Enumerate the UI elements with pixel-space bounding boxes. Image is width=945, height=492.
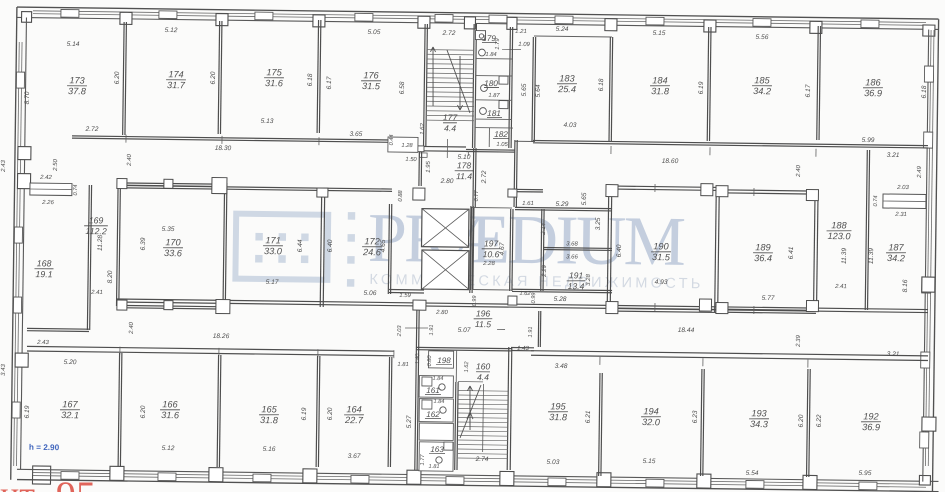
svg-text:2.43: 2.43 [36,340,49,346]
svg-text:174: 174 [168,69,183,79]
svg-text:2.40: 2.40 [796,164,802,177]
svg-text:31.6: 31.6 [161,410,180,420]
svg-text:2.74: 2.74 [475,456,489,463]
svg-text:31.5: 31.5 [362,81,381,91]
svg-text:36.9: 36.9 [864,88,882,98]
svg-text:1.84: 1.84 [433,399,444,405]
svg-text:160: 160 [476,361,491,371]
svg-text:1.79: 1.79 [495,38,501,50]
svg-text:11.28: 11.28 [97,235,104,251]
svg-text:4.65: 4.65 [380,239,387,252]
svg-text:5.15: 5.15 [643,458,656,465]
svg-text:178: 178 [457,160,472,170]
svg-text:112.2: 112.2 [85,226,107,236]
svg-text:6.41: 6.41 [788,246,795,259]
svg-text:3.68: 3.68 [566,241,578,247]
svg-text:1.05: 1.05 [496,142,508,148]
svg-text:3.43: 3.43 [1,363,7,375]
svg-text:0.99: 0.99 [472,295,478,306]
svg-text:10.6: 10.6 [483,249,500,259]
svg-text:2.41: 2.41 [90,290,103,296]
svg-text:3.48: 3.48 [555,363,568,370]
svg-text:196: 196 [476,308,491,318]
svg-text:2.40: 2.40 [129,321,135,334]
svg-text:1.84: 1.84 [485,52,496,58]
svg-text:18.30: 18.30 [215,145,232,152]
svg-text:5.27: 5.27 [406,415,413,428]
svg-text:5.12: 5.12 [162,445,175,452]
svg-text:22.7: 22.7 [344,415,364,425]
svg-text:193: 193 [751,408,767,418]
svg-text:5.24: 5.24 [556,26,569,33]
svg-text:194: 194 [643,406,658,416]
svg-text:95: 95 [56,473,96,492]
svg-text:33.6: 33.6 [164,248,183,258]
svg-text:170: 170 [165,237,181,247]
svg-text:37.8: 37.8 [68,86,87,96]
svg-text:11.39: 11.39 [841,248,848,264]
svg-text:4.67: 4.67 [499,242,506,255]
svg-text:5.17: 5.17 [266,279,279,286]
svg-text:1.77: 1.77 [420,454,426,466]
svg-text:34.3: 34.3 [750,419,769,429]
svg-text:172: 172 [364,236,379,246]
svg-text:1.91: 1.91 [429,324,435,335]
svg-text:6.40: 6.40 [616,244,623,257]
svg-text:5.29: 5.29 [556,201,569,208]
svg-text:6.20: 6.20 [140,405,147,418]
svg-text:0.44: 0.44 [389,134,395,145]
svg-text:6.17: 6.17 [805,84,812,97]
svg-text:5.20: 5.20 [64,359,77,366]
svg-text:2.03: 2.03 [397,325,403,338]
svg-text:36.4: 36.4 [754,253,772,263]
svg-text:163: 163 [430,445,444,454]
svg-text:5.05: 5.05 [368,29,381,36]
svg-text:5.13: 5.13 [261,118,274,125]
svg-text:6.18: 6.18 [921,85,928,98]
svg-text:36.9: 36.9 [862,422,880,432]
svg-text:11.39: 11.39 [868,248,875,264]
svg-text:1.59: 1.59 [399,293,411,299]
svg-text:5.64: 5.64 [535,84,542,97]
svg-text:31.8: 31.8 [549,412,568,422]
svg-text:169: 169 [89,215,104,225]
svg-text:6.18: 6.18 [598,78,605,91]
svg-text:6.58: 6.58 [399,81,406,94]
svg-text:33.0: 33.0 [264,246,283,256]
svg-text:31.8: 31.8 [260,415,279,425]
svg-text:ит.: ит. [0,474,41,492]
svg-text:187: 187 [888,242,904,252]
svg-text:1.95: 1.95 [426,160,432,172]
svg-text:175: 175 [266,67,282,77]
svg-text:2.80: 2.80 [440,178,454,185]
svg-text:188: 188 [831,220,847,230]
svg-text:2.72: 2.72 [442,30,456,37]
svg-text:1.81: 1.81 [429,464,440,470]
svg-text:182: 182 [494,130,508,139]
svg-text:1.61: 1.61 [522,201,534,207]
svg-text:4.4: 4.4 [477,372,489,382]
svg-text:6.17: 6.17 [326,76,333,89]
svg-text:5.12: 5.12 [165,27,178,34]
svg-text:168: 168 [37,258,52,268]
svg-text:5.65: 5.65 [581,192,588,205]
svg-text:167: 167 [62,399,78,409]
svg-text:191: 191 [569,270,584,280]
svg-text:1.81: 1.81 [397,362,408,368]
svg-text:4.4: 4.4 [444,123,456,133]
svg-text:161: 161 [426,386,439,395]
svg-text:6.23: 6.23 [692,410,699,423]
svg-text:31.5: 31.5 [652,252,671,262]
svg-text:2.80: 2.80 [435,310,448,316]
svg-text:177: 177 [443,112,459,122]
svg-text:6.40: 6.40 [327,239,334,252]
svg-text:1.62: 1.62 [464,361,470,373]
svg-text:6.19: 6.19 [24,405,31,418]
svg-text:5.06: 5.06 [364,290,377,297]
svg-text:197: 197 [484,238,500,248]
svg-text:165: 165 [261,404,277,414]
svg-text:2.72: 2.72 [85,126,99,133]
svg-text:6.19: 6.19 [698,81,705,94]
svg-text:4.03: 4.03 [564,122,577,129]
svg-text:6.20: 6.20 [327,407,334,420]
svg-text:18.44: 18.44 [678,327,695,334]
svg-text:1.43: 1.43 [517,346,529,352]
svg-text:1.09: 1.09 [518,42,530,48]
svg-text:34.2: 34.2 [753,86,771,96]
svg-text:31.8: 31.8 [651,86,670,96]
svg-text:5.95: 5.95 [859,470,872,477]
svg-text:190: 190 [653,241,669,251]
svg-text:18.60: 18.60 [662,158,679,165]
svg-text:19.1: 19.1 [35,269,52,279]
svg-text:195: 195 [550,401,566,411]
svg-text:31.7: 31.7 [167,80,186,90]
svg-text:162: 162 [426,410,440,419]
svg-text:183: 183 [559,73,575,83]
svg-text:5.35: 5.35 [162,226,175,233]
svg-text:2.39: 2.39 [796,334,802,347]
svg-text:2.72: 2.72 [481,170,488,184]
svg-text:8.16: 8.16 [902,279,909,292]
svg-text:5.10: 5.10 [458,154,471,161]
svg-text:13.4: 13.4 [568,281,585,291]
svg-text:3.67: 3.67 [348,453,361,460]
svg-text:5.28: 5.28 [554,296,567,303]
svg-text:8.20: 8.20 [107,270,114,283]
svg-text:3.66: 3.66 [566,254,578,260]
svg-text:184: 184 [652,75,667,85]
svg-text:181: 181 [487,109,501,118]
svg-text:5.99: 5.99 [862,137,875,144]
svg-text:18.26: 18.26 [213,333,230,340]
svg-text:3.21: 3.21 [887,152,900,159]
svg-text:189: 189 [755,242,770,252]
svg-text:4.93: 4.93 [655,279,668,286]
svg-text:6.20: 6.20 [210,71,217,84]
svg-text:6.21: 6.21 [585,410,592,423]
svg-text:0.99: 0.99 [531,293,537,304]
svg-text:5.07: 5.07 [458,327,471,334]
svg-text:6.20: 6.20 [114,71,121,84]
svg-text:166: 166 [162,399,178,409]
svg-text:171: 171 [265,235,280,245]
svg-text:8.70: 8.70 [24,91,31,104]
svg-text:34.2: 34.2 [887,253,905,263]
svg-text:0.80: 0.80 [427,355,433,367]
svg-text:31.6: 31.6 [265,78,284,88]
svg-text:5.14: 5.14 [67,41,80,48]
svg-text:PRÆDIUM: PRÆDIUM [367,200,686,281]
svg-text:0.74: 0.74 [73,185,79,196]
svg-text:1.91: 1.91 [528,326,534,337]
svg-text:164: 164 [346,404,361,414]
svg-text:198: 198 [437,356,451,365]
svg-text:2.26: 2.26 [41,200,54,206]
svg-text:0.74: 0.74 [873,196,879,207]
svg-text:6.20: 6.20 [798,414,805,427]
svg-text:1.84: 1.84 [432,376,443,382]
svg-text:11.5: 11.5 [475,319,491,329]
svg-text:3.25: 3.25 [595,217,602,230]
svg-text:176: 176 [363,70,379,80]
svg-text:1.62: 1.62 [420,122,426,134]
svg-text:123.0: 123.0 [828,231,852,241]
svg-text:1.28: 1.28 [401,143,413,149]
svg-text:1.40: 1.40 [415,353,421,365]
svg-text:5.15: 5.15 [653,30,666,37]
svg-text:5.65: 5.65 [521,83,528,96]
svg-text:180: 180 [484,79,498,88]
svg-text:185: 185 [754,75,770,85]
svg-text:0.77: 0.77 [474,190,480,202]
svg-text:2.40: 2.40 [127,153,133,166]
svg-text:0.88: 0.88 [398,190,404,202]
svg-text:1.21: 1.21 [515,29,527,35]
svg-text:2.28: 2.28 [482,261,495,267]
svg-text:2.49: 2.49 [917,165,923,178]
svg-text:3.21: 3.21 [887,351,900,358]
svg-text:5.16: 5.16 [263,446,276,453]
svg-text:6.22: 6.22 [816,414,823,427]
svg-text:25.4: 25.4 [557,84,576,94]
svg-text:5.56: 5.56 [756,34,769,41]
svg-text:2.31: 2.31 [894,212,907,218]
svg-text:2.03: 2.03 [896,185,909,191]
svg-text:2.42: 2.42 [39,175,52,181]
svg-text:1.87: 1.87 [488,93,500,99]
svg-text:1.50: 1.50 [405,157,417,163]
svg-text:2.41: 2.41 [834,284,847,290]
svg-text:6.39: 6.39 [140,237,147,250]
svg-text:2.50: 2.50 [53,158,59,171]
svg-text:11.4: 11.4 [456,171,472,181]
svg-text:6.18: 6.18 [307,73,314,86]
svg-text:186: 186 [865,77,881,87]
svg-text:6.44: 6.44 [297,239,304,252]
svg-text:24.6: 24.6 [362,247,382,257]
svg-text:192: 192 [863,411,878,421]
svg-text:3.28: 3.28 [586,273,592,285]
svg-text:32.0: 32.0 [642,417,661,427]
svg-text:h = 2.90: h = 2.90 [29,443,60,452]
svg-text:5.54: 5.54 [746,470,759,477]
svg-text:173: 173 [69,75,85,85]
svg-text:6.19: 6.19 [301,407,308,420]
svg-text:5.03: 5.03 [547,459,560,466]
svg-text:3.65: 3.65 [350,131,363,138]
svg-text:2.43: 2.43 [1,159,7,172]
svg-text:5.77: 5.77 [762,295,775,302]
svg-text:32.1: 32.1 [61,410,79,420]
